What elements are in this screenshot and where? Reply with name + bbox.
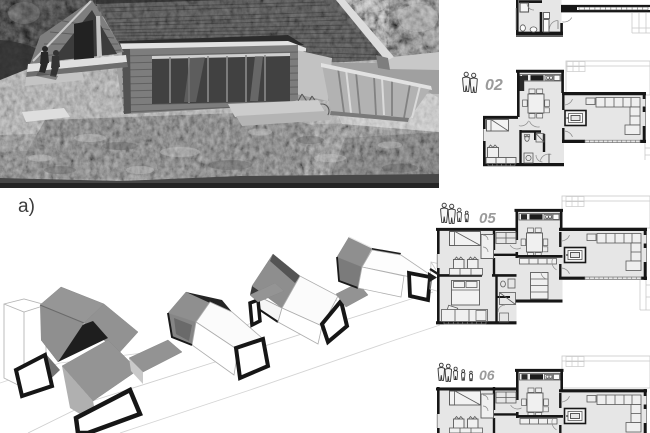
svg-text:06: 06 [479,367,495,383]
svg-text:05: 05 [479,210,496,227]
svg-text:a): a) [18,196,35,217]
svg-text:02: 02 [485,77,503,94]
